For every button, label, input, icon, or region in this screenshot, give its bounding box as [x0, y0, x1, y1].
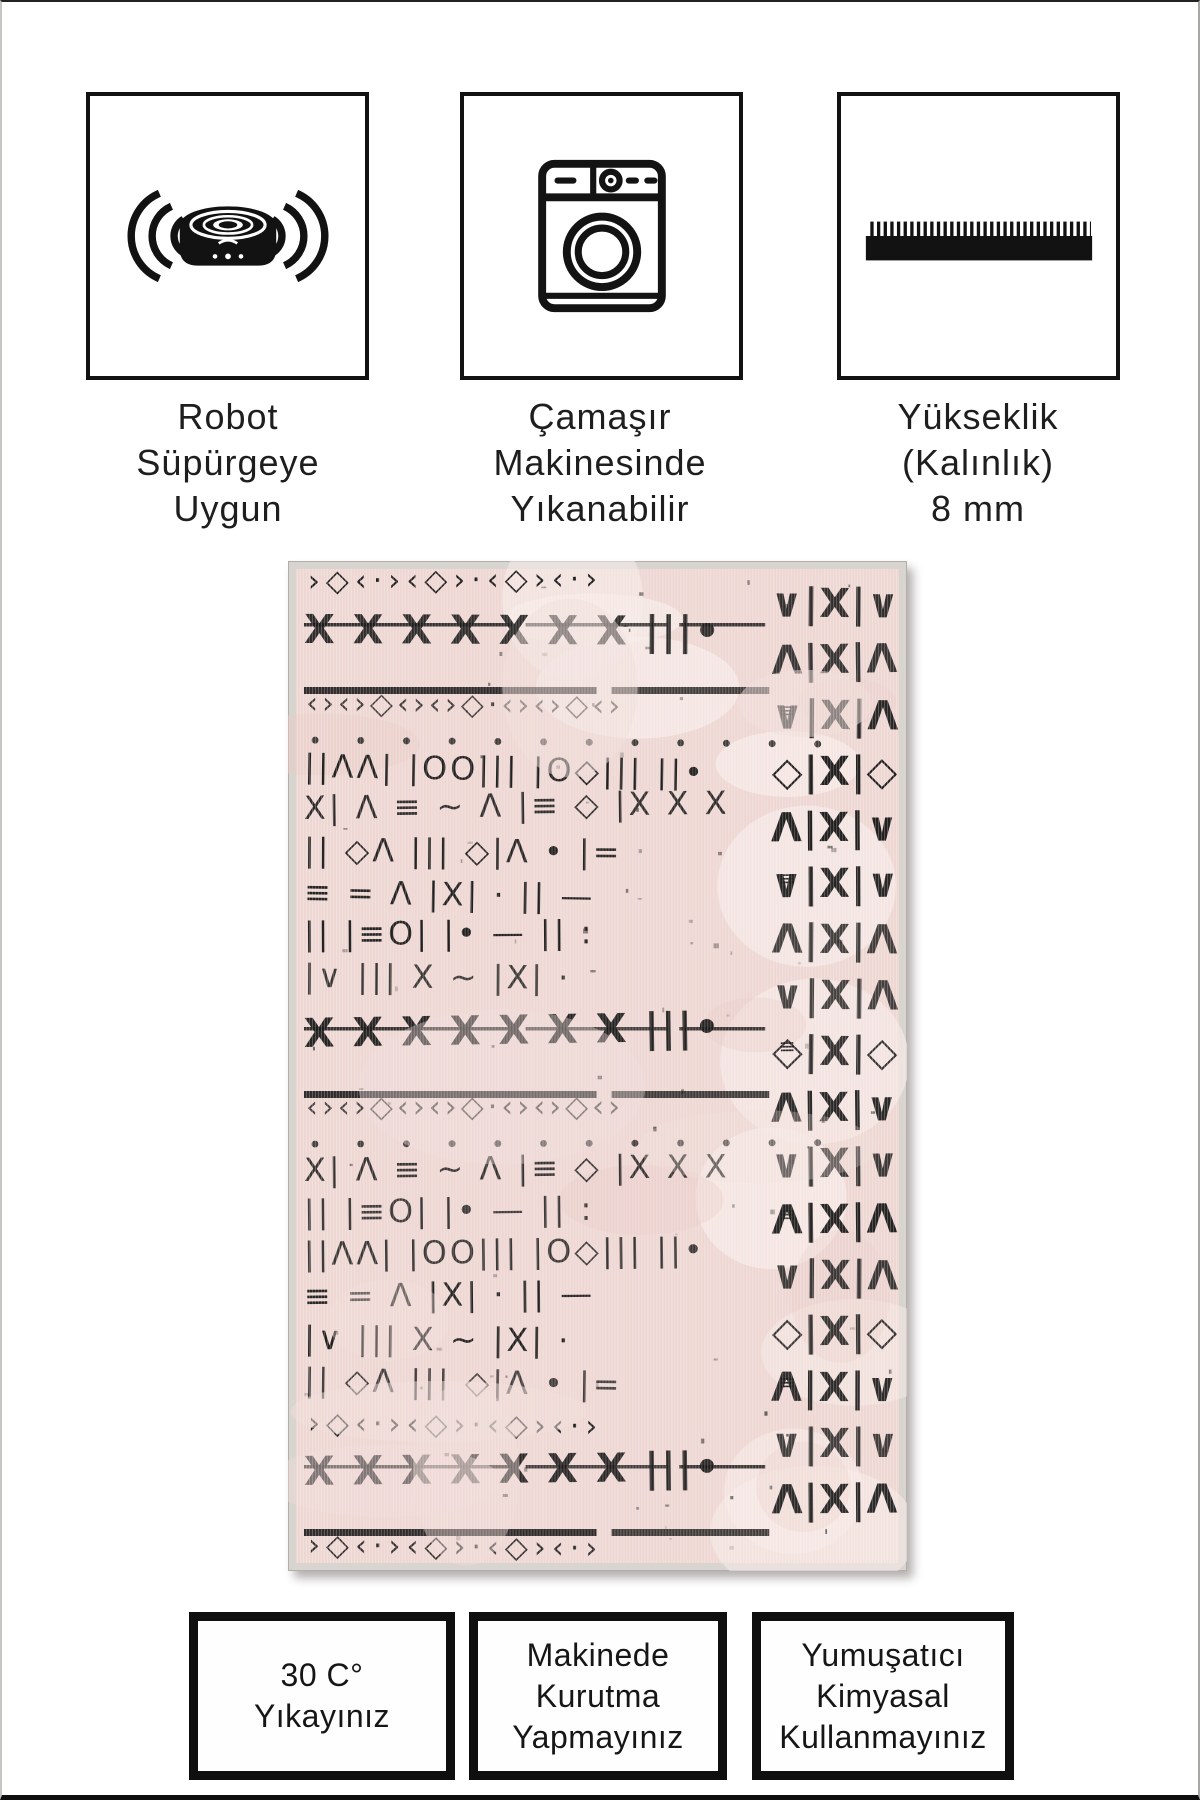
robot-vacuum-icon-box	[86, 92, 369, 380]
washing-machine-icon-box	[460, 92, 743, 380]
care-box-wash-30: 30 C° Yıkayınız	[189, 1612, 455, 1780]
care-line: Kurutma	[536, 1676, 660, 1717]
feature-caption-robot-vacuum: Robot Süpürgeye Uygun	[58, 394, 398, 532]
care-box-no-tumble-dry: Makinede Kurutma Yapmayınız	[469, 1612, 727, 1780]
care-box-no-softener: Yumuşatıcı Kimyasal Kullanmayınız	[752, 1612, 1014, 1780]
care-line: Yıkayınız	[254, 1696, 390, 1737]
caption-line: (Kalınlık)	[808, 440, 1148, 486]
rug-pattern-graphic: ›◇‹·›‹◇›·‹◇›‹·›X X X X X X X |||•‹›‹›◇‹›…	[288, 561, 907, 1571]
caption-line: Çamaşır	[430, 394, 770, 440]
caption-line: Uygun	[58, 486, 398, 532]
care-line: Kullanmayınız	[779, 1717, 986, 1758]
caption-line: Makinesinde	[430, 440, 770, 486]
caption-line: Yıkanabilir	[430, 486, 770, 532]
pile-height-icon-box	[837, 92, 1120, 380]
rug-product-image: ›◇‹·›‹◇›·‹◇›‹·›X X X X X X X |||•‹›‹›◇‹›…	[288, 561, 907, 1571]
caption-line: Robot	[58, 394, 398, 440]
care-line: Makinede	[527, 1635, 670, 1676]
washing-machine-icon	[514, 148, 690, 324]
care-line: 30 C°	[281, 1655, 364, 1696]
care-line: Yumuşatıcı	[801, 1635, 964, 1676]
caption-line: Süpürgeye	[58, 440, 398, 486]
care-line: Kimyasal	[816, 1676, 950, 1717]
feature-caption-pile-height: Yükseklik (Kalınlık) 8 mm	[808, 394, 1148, 532]
feature-caption-machine-washable: Çamaşır Makinesinde Yıkanabilir	[430, 394, 770, 532]
product-infographic: Robot Süpürgeye Uygun Çamaşır Makinesind…	[0, 0, 1200, 1800]
care-line: Yapmayınız	[512, 1717, 684, 1758]
pile-height-icon	[857, 197, 1101, 275]
caption-line: Yükseklik	[808, 394, 1148, 440]
robot-vacuum-icon	[126, 180, 330, 292]
caption-line: 8 mm	[808, 486, 1148, 532]
